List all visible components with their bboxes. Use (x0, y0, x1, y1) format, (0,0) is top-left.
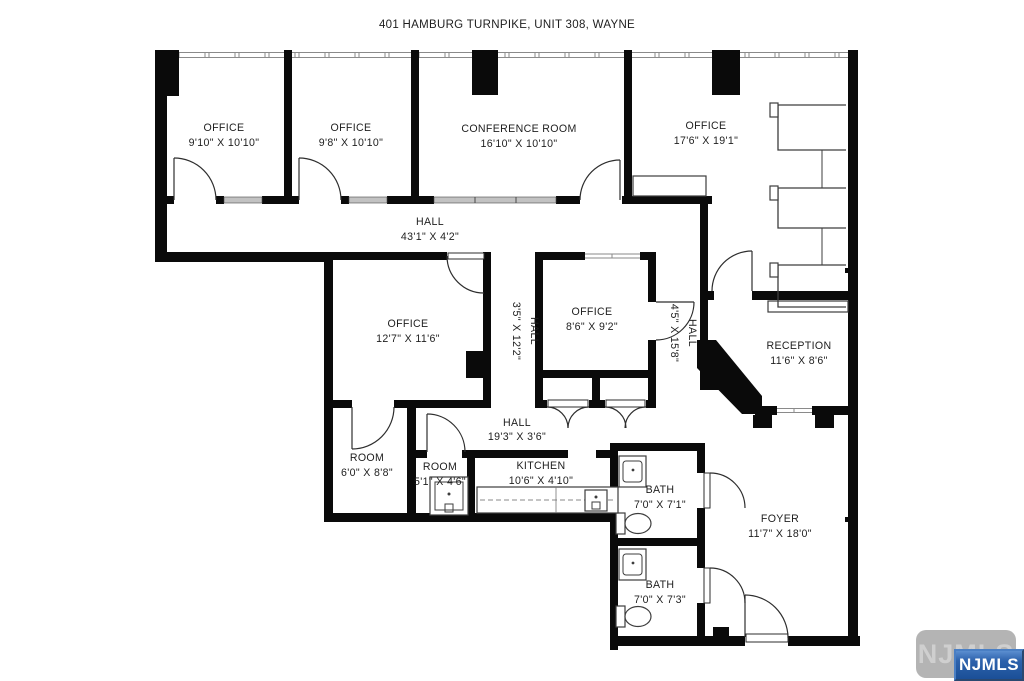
office-furniture (633, 103, 846, 307)
room-name: OFFICE (204, 122, 245, 134)
label-bath2: BATH 7'0" X 7'3" (634, 579, 686, 606)
room-dims: 19'3" X 3'6" (488, 431, 546, 443)
logo-text: NJMLS (959, 655, 1019, 675)
room-name: BATH (646, 579, 675, 591)
room-dims: 16'10" X 10'10" (481, 138, 558, 150)
door-conference (580, 160, 620, 200)
glass-panel (434, 197, 556, 203)
floorplan-drawing: 401 HAMBURG TURNPIKE, UNIT 308, WAYNE (0, 0, 1024, 681)
room-name: BATH (646, 484, 675, 496)
room-name: HALL (503, 417, 531, 429)
label-bath1: BATH 7'0" X 7'1" (634, 484, 686, 511)
kitchen-counter (477, 487, 618, 513)
room-dims: 7'0" X 7'1" (634, 499, 686, 511)
room-dims: 3'5" X 12'2" (510, 302, 522, 360)
reception-window (777, 406, 812, 415)
floorplan-page: 401 HAMBURG TURNPIKE, UNIT 308, WAYNE (0, 0, 1024, 681)
room-dims: 6'0" X 8'8" (341, 467, 393, 479)
label-hall-main: HALL 43'1" X 4'2" (401, 216, 459, 243)
door-bath2 (704, 568, 745, 603)
room-name: ROOM (350, 452, 384, 464)
room-dims: 10'6" X 4'10" (509, 475, 573, 487)
sink-icon (619, 549, 646, 580)
door-foyer-entry (745, 595, 788, 642)
room-name: OFFICE (388, 318, 429, 330)
desk (778, 105, 846, 150)
room-name: ROOM (423, 461, 457, 473)
label-hall-lower: HALL 19'3" X 3'6" (488, 417, 546, 443)
room-dims: 5'1" X 4'6" (414, 476, 466, 488)
glass-panel (349, 197, 387, 203)
sink-icon (619, 456, 646, 487)
room-dims: 43'1" X 4'2" (401, 231, 459, 243)
room-name: HALL (686, 319, 698, 347)
room-dims: 7'0" X 7'3" (634, 594, 686, 606)
desk (778, 188, 846, 228)
glass-panel (224, 197, 262, 203)
toilet-icon (616, 513, 651, 534)
door-office2 (299, 158, 341, 200)
room-dims: 12'7" X 11'6" (376, 333, 440, 345)
window-wall-top (167, 50, 848, 60)
room-dims: 8'6" X 9'2" (566, 321, 618, 333)
room-dims: 4'5" X 15'8" (668, 304, 680, 362)
door-room1 (352, 407, 394, 449)
desk (633, 176, 706, 196)
office-window (585, 252, 640, 260)
room-name: OFFICE (331, 122, 372, 134)
room-dims: 11'6" X 8'6" (770, 355, 827, 367)
label-hall-v2: HALL 4'5" X 15'8" (668, 304, 698, 362)
room-name: OFFICE (572, 306, 613, 318)
room-name: RECEPTION (767, 340, 832, 352)
label-office6: OFFICE 8'6" X 9'2" (566, 306, 618, 333)
label-room2: ROOM 5'1" X 4'6" (414, 461, 466, 488)
room-name: CONFERENCE ROOM (461, 123, 576, 135)
room-dims: 9'8" X 10'10" (319, 137, 383, 149)
room-name: KITCHEN (517, 460, 566, 472)
label-conference: CONFERENCE ROOM 16'10" X 10'10" (461, 123, 576, 150)
label-reception: RECEPTION 11'6" X 8'6" (767, 340, 832, 367)
toilet-icon (616, 606, 651, 627)
room-dims: 11'7" X 18'0" (748, 528, 812, 540)
room-name: HALL (528, 317, 540, 345)
page-title: 401 HAMBURG TURNPIKE, UNIT 308, WAYNE (379, 19, 635, 31)
door-office1 (174, 158, 216, 200)
room-dims: 17'6" X 19'1" (674, 135, 738, 147)
label-room1: ROOM 6'0" X 8'8" (341, 452, 393, 479)
room-name: OFFICE (686, 120, 727, 132)
room-name: FOYER (761, 513, 799, 525)
label-office5: OFFICE 12'7" X 11'6" (376, 318, 440, 345)
njmls-logo-badge: NJMLS (954, 649, 1024, 681)
label-office4: OFFICE 17'6" X 19'1" (674, 120, 738, 147)
label-office1: OFFICE 9'10" X 10'10" (189, 122, 260, 149)
door-office4 (712, 251, 752, 291)
door-bath1 (704, 473, 745, 508)
door-room2 (427, 414, 465, 452)
room-dims: 9'10" X 10'10" (189, 137, 260, 149)
label-kitchen: KITCHEN 10'6" X 4'10" (509, 460, 573, 487)
door-office5 (447, 253, 484, 293)
room-name: HALL (416, 216, 444, 228)
label-foyer: FOYER 11'7" X 18'0" (748, 513, 812, 540)
label-office2: OFFICE 9'8" X 10'10" (319, 122, 383, 149)
